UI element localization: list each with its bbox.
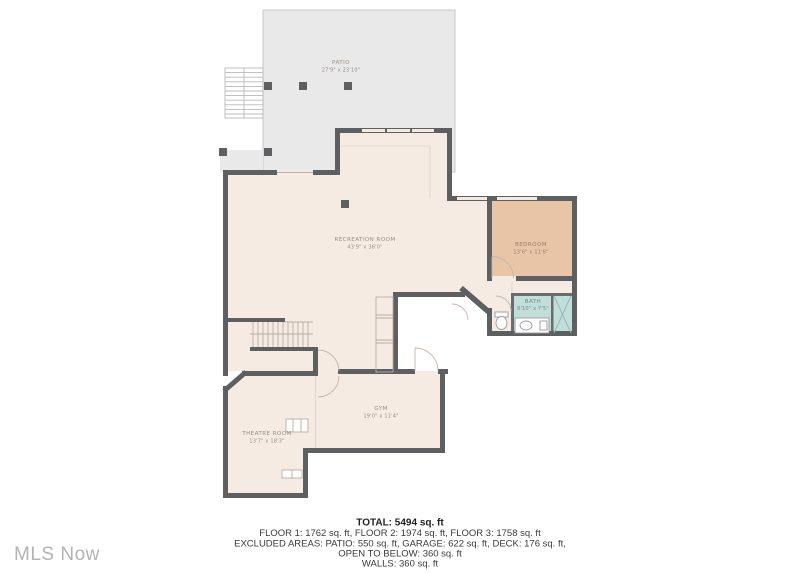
mls-watermark: MLS Now <box>14 544 100 565</box>
recreation-room-label: RECREATION ROOM <box>334 237 395 243</box>
patio-dims: 27'9" x 23'10" <box>322 68 361 74</box>
bedroom-dims: 13'6" x 11'6" <box>513 250 548 256</box>
recreation-room-post <box>341 200 349 208</box>
bedroom-label: BEDROOM <box>515 242 547 248</box>
recreation-room-floor <box>223 170 452 297</box>
area-summary: TOTAL: 5494 sq. ft FLOOR 1: 1762 sq. ft,… <box>234 518 566 570</box>
gym-dims: 19'0" x 11'4" <box>363 414 398 420</box>
summary-floors: FLOOR 1: 1762 sq. ft, FLOOR 2: 1974 sq. … <box>259 528 541 539</box>
bath-dims: 8'10" x 7'5" <box>517 306 549 312</box>
hall-door-arc <box>452 304 468 320</box>
floor-plan-canvas: PATIO 27'9" x 23'10" RECREATION ROOM 43'… <box>0 0 800 573</box>
bath-label: BATH <box>525 299 541 305</box>
gym-label: GYM <box>374 406 388 412</box>
stair-hall-floor <box>223 297 375 376</box>
recreation-room-floor-upper <box>335 128 452 170</box>
gym-door-arc <box>415 348 438 371</box>
floor-plan-page: PATIO 27'9" x 23'10" RECREATION ROOM 43'… <box>0 0 800 573</box>
theatre-room-label: THEATRE ROOM <box>241 431 291 437</box>
gym-floor <box>308 371 445 453</box>
recreation-room-dims: 43'9" x 36'0" <box>347 245 382 251</box>
summary-total: TOTAL: 5494 sq. ft <box>356 518 444 529</box>
exterior-stairs <box>225 68 263 118</box>
sink <box>520 321 532 330</box>
summary-walls: WALLS: 360 sq. ft <box>362 559 439 570</box>
patio-label: PATIO <box>332 60 350 66</box>
theatre-room-dims: 13'7" x 18'3" <box>249 439 284 445</box>
bedroom-floor <box>490 199 574 278</box>
toilet-bowl <box>496 317 507 330</box>
